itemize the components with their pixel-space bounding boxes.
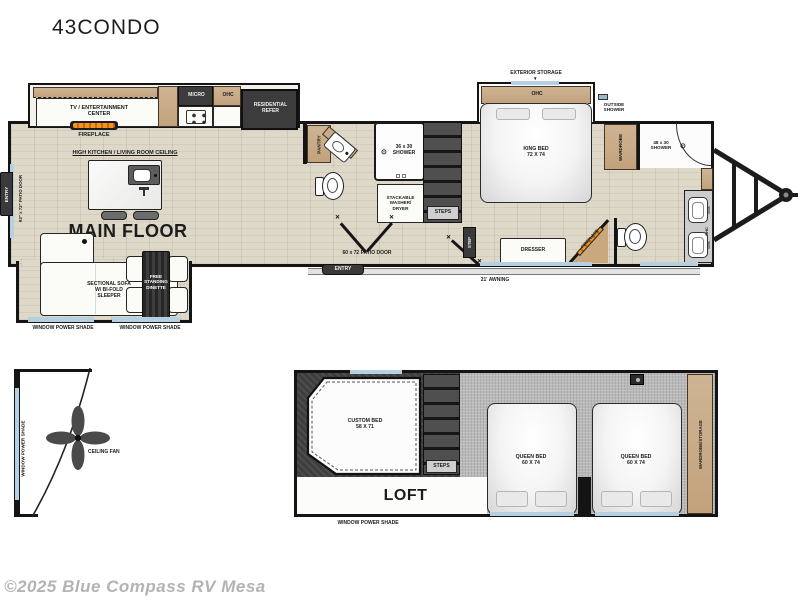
frontcap-curve [20, 360, 150, 520]
sink-icon [330, 139, 346, 155]
kitchen-ohc-strip [33, 87, 158, 98]
loft-shade-label: WINDOW POWER SHADE [298, 521, 438, 527]
toilet-icon [322, 172, 344, 200]
king-bed-label: KING BED 72 X 74 [497, 146, 575, 158]
range-burners-icon [186, 110, 206, 124]
loft-window-top [350, 370, 402, 374]
frontcap-shade-labelwrap: WINDOW POWER SHADE [17, 406, 29, 490]
fireplace-front-label: FIREPLACE [62, 132, 126, 138]
outside-shower-label: OUTSIDE SHOWER [596, 102, 632, 113]
side-patio-door-label: 93" x 72" PATIO DOOR [19, 174, 24, 221]
step-label: STEP [467, 237, 472, 248]
floorplan-page: { "title": "43CONDO", "watermark": "©202… [0, 0, 800, 600]
ceiling-fan-icon [46, 406, 110, 470]
roof-vent-icon [630, 374, 644, 385]
pillow [496, 491, 528, 507]
microwave-label: MICRO [179, 93, 214, 99]
dinette-label: FREE STANDING DINETTE [143, 274, 169, 290]
pillow [496, 108, 530, 120]
shade-label-sofa: WINDOW POWER SHADE [23, 326, 103, 332]
queen-bed-2: QUEEN BED 60 X 74 [592, 403, 682, 515]
loft-stairs-bottom-tread: STEPS [426, 460, 457, 473]
kitchen-ohc-cabinet: OHC [213, 86, 241, 106]
door-handle-icon: ✕ [446, 234, 451, 241]
loft-wardrobe-storage: WARDROBE/STORAGE [687, 374, 713, 514]
sofa-pillow-dot [82, 239, 87, 244]
side-entry-label: ENTRY [4, 186, 9, 201]
kitchen-cabinet-divider [158, 86, 178, 127]
washer-dryer-label: STACKABLE WASHER/ DRYER [378, 195, 423, 211]
custom-bed-label: CUSTOM BED 58 X 71 [325, 418, 405, 430]
window-shade-strip [595, 512, 679, 516]
shower-head-icon: ⊙ [680, 142, 686, 150]
toilet-icon [624, 223, 647, 251]
queen-bed-1: QUEEN BED 60 X 74 [487, 403, 577, 515]
residential-refrigerator: RESIDENTIAL REFER [241, 89, 298, 130]
tv-entertainment-label: TV / ENTERTAINMENT CENTER [37, 105, 161, 118]
arrow-down-icon: ▼ [533, 76, 537, 81]
page-title: 43CONDO [52, 16, 212, 41]
main-entry-tab: ENTRY [322, 264, 364, 275]
door-handle-icon: ✕ [335, 214, 340, 221]
loft-wardrobe-label: WARDROBE/STORAGE [698, 420, 703, 469]
faucet-icon [345, 151, 349, 155]
fireplace-flame-icon [73, 123, 115, 128]
sink-basin [692, 202, 704, 219]
fireplace-front [70, 121, 118, 130]
pillow [640, 491, 672, 507]
watermark: ©2025 Blue Compass RV Mesa [4, 577, 404, 597]
bedroom-window [511, 81, 559, 85]
pillow [542, 108, 576, 120]
toilet-bowl [629, 229, 641, 244]
stairs-bottom-tread: STEPS [427, 206, 459, 220]
awning-label: 21' AWNING [465, 278, 525, 284]
shower-mid-label: 36 x 30 SHOWER [386, 145, 422, 157]
island-stool [133, 211, 159, 220]
pillow [601, 491, 633, 507]
dresser: DRESSER [500, 238, 566, 264]
range-cooktop [178, 106, 213, 127]
side-entry-tab: ENTRY [0, 172, 13, 216]
pantry-label: PANTRY [317, 135, 322, 153]
vent-dot [636, 378, 640, 382]
main-entry-label: ENTRY [323, 267, 363, 273]
ceiling-fan-label: CEILING FAN [88, 450, 138, 456]
steps-label: STEPS [428, 210, 458, 216]
loft-title: LOFT [368, 487, 443, 506]
sink-icon [133, 169, 151, 182]
kitchen-ohc-label: OHC [214, 93, 242, 99]
side-patio-door-dim: 93" x 72" PATIO DOOR [15, 150, 27, 246]
bedroom-ohc: OHC [481, 86, 591, 104]
window-shade-strip [640, 262, 698, 266]
window-shade-strip [480, 262, 592, 266]
door-handle-icon: ✕ [389, 214, 394, 221]
dinette-chair [168, 287, 188, 313]
toilet-bowl [327, 178, 338, 193]
sofa-seam [42, 264, 92, 272]
window-shade-strip [28, 317, 94, 322]
ceiling-note: HIGH KITCHEN / LIVING ROOM CEILING [50, 150, 200, 156]
wardrobe-bedroom: WARDROBE [604, 124, 637, 170]
dinette-table: FREE STANDING DINETTE [142, 251, 170, 322]
loft-bed-divider-wall [578, 477, 591, 515]
refrigerator-label: RESIDENTIAL REFER [243, 103, 298, 115]
step-tab: STEP [463, 227, 476, 258]
wardrobe-label: WARDROBE [618, 133, 623, 160]
awning-strip [308, 268, 700, 275]
island-stool [101, 211, 127, 220]
bedroom-ohc-label: OHC [482, 92, 592, 98]
dinette-chair [168, 256, 188, 282]
king-bed: KING BED 72 X 74 [480, 103, 592, 203]
pillow [535, 491, 567, 507]
shower-drain-icon [402, 174, 406, 178]
microwave-cabinet: MICRO [178, 86, 213, 106]
loft-steps-label: STEPS [427, 464, 456, 470]
shade-label-dinette: WINDOW POWER SHADE [110, 326, 190, 332]
island-faucet-stem [143, 187, 145, 196]
queen-bed-2-label: QUEEN BED 60 X 74 [598, 454, 674, 466]
dresser-label: DRESSER [501, 248, 565, 254]
kitchen-counter [213, 106, 241, 127]
island-sink-unit [128, 165, 160, 185]
kitchen-island [88, 160, 162, 210]
shower-mid: ⊙ 36 x 30 SHOWER [374, 122, 425, 181]
queen-bed-1-label: QUEEN BED 60 X 74 [493, 454, 569, 466]
hitch-icon [706, 138, 800, 256]
outside-shower-box [598, 94, 608, 100]
shower-rear-label: 48 x 30 SHOWER [641, 140, 681, 151]
frontcap-shade-label: WINDOW POWER SHADE [21, 420, 26, 476]
washer-dryer: STACKABLE WASHER/ DRYER [377, 184, 424, 223]
faucet-icon [154, 174, 157, 177]
shower-drain-icon [396, 174, 400, 178]
window-shade-strip [490, 512, 574, 516]
window-shade-strip [112, 317, 180, 322]
patio-door-main-label: 60 x 72 PATIO DOOR [334, 251, 400, 257]
